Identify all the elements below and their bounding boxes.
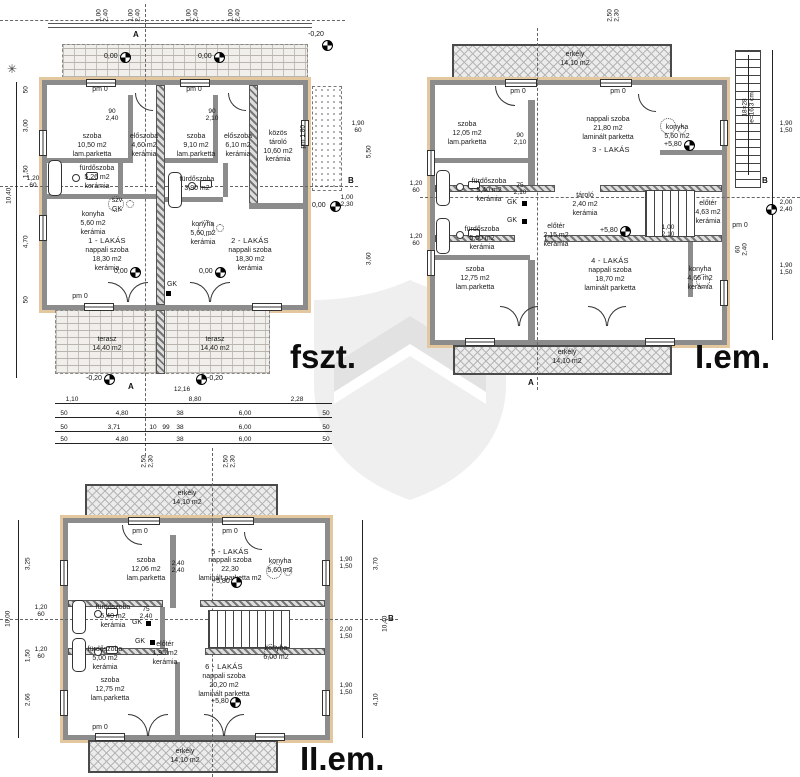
dim: 4,70 xyxy=(22,235,29,248)
room-label-furdo3: fürdőszoba 5,40 m2 kerámia xyxy=(472,178,507,204)
toilet-icon xyxy=(456,183,464,191)
axis-line-fszt xyxy=(145,4,146,456)
window xyxy=(427,150,435,176)
room-label-szoba6: szoba 12,75 m2 lam.parketta xyxy=(91,677,130,703)
level-marker-icon xyxy=(620,226,631,237)
label-szv-gk: szv GK xyxy=(112,197,123,215)
dim: 38 xyxy=(176,424,183,431)
external-ramp xyxy=(312,86,342,191)
dim-iem-top: 2,50 2,30 xyxy=(607,9,622,22)
dim: 1,20 60 xyxy=(410,233,423,248)
double-door xyxy=(500,306,538,326)
dim-door-a: 90 2,40 xyxy=(106,108,119,123)
level-marker-icon xyxy=(214,52,225,63)
gk-point-icon xyxy=(522,201,527,206)
dim-door: 1,00 2,10 xyxy=(662,224,675,239)
dim: 6,00 xyxy=(239,410,252,417)
section-mark-a-bottom: A xyxy=(128,382,134,391)
level-minus-top: -0,20 xyxy=(308,31,324,38)
level-marker-icon xyxy=(196,374,207,385)
level-zero-apt1: 0,00 xyxy=(114,268,128,275)
level-marker-icon xyxy=(684,140,695,151)
dim-door: 75 2,10 xyxy=(514,182,527,197)
dim: 1,20 60 xyxy=(410,180,423,195)
room-label-szoba5: szoba 12,06 m2 lam.parketta xyxy=(127,557,166,583)
gk-point-icon xyxy=(166,291,171,296)
window xyxy=(39,130,47,156)
dim: 50 xyxy=(60,424,67,431)
double-door xyxy=(108,282,148,302)
room-label-eloter-mid: előtér 2,15 m2 kerámia xyxy=(543,223,568,249)
room-label-furdo5: fürdőszoba 5,40 m2 kerámia xyxy=(96,604,131,630)
dim: 1,20 60 xyxy=(27,175,40,190)
balcony-label-top: erkély 14,10 m2 xyxy=(560,51,589,69)
double-door xyxy=(588,306,626,326)
section-mark-b: B xyxy=(348,176,354,185)
window xyxy=(252,303,282,311)
section-mark-a-top: A xyxy=(133,30,139,39)
dim: 3,00 xyxy=(22,119,29,132)
dim: 38 xyxy=(176,410,183,417)
level-marker-icon xyxy=(130,267,141,278)
window xyxy=(465,338,495,346)
label-pm0: pm 0 xyxy=(92,724,108,733)
dim-line xyxy=(55,431,332,432)
dim: 50 xyxy=(22,86,29,93)
terrace-label-left: terasz 14,40 m2 xyxy=(92,336,121,354)
dim-line xyxy=(362,520,363,738)
corridor-wall xyxy=(200,600,325,607)
dim-fszt-top-2: 1,00 2,40 xyxy=(128,9,143,22)
room-label-nappali6: nappali szoba 20,20 m2 laminált parketta xyxy=(198,673,249,699)
label-pm0: pm 0 xyxy=(222,528,238,537)
room-label-szoba1: szoba 10,50 m2 lam.parketta xyxy=(73,133,112,159)
level-iem: +5,80 xyxy=(600,227,618,234)
bathtub-icon xyxy=(436,170,450,206)
stair-note: 18×28 e=16,3 cm xyxy=(742,92,757,123)
dim: 2,66 xyxy=(24,693,31,706)
room-label-furdo6: fürdőszoba 5,00 m2 kerámia xyxy=(88,646,123,672)
level-marker-icon xyxy=(230,697,241,708)
dim-total: 12,16 xyxy=(174,386,190,393)
dim: 4,80 xyxy=(116,410,129,417)
dim: 1,90 1,50 xyxy=(340,556,353,571)
terrace-label-right: terasz 14,40 m2 xyxy=(200,336,229,354)
dim: 99 xyxy=(162,424,169,431)
label-pm0: pm 0 xyxy=(610,88,626,97)
dim: 50 xyxy=(22,296,29,303)
dim: 4,10 xyxy=(372,693,379,706)
window xyxy=(645,338,675,346)
window xyxy=(322,690,330,716)
room-label-eloter-right: előtér 4,63 m2 kerámia xyxy=(695,200,720,226)
dim-fszt-top-3: 1,00 2,40 xyxy=(186,9,201,22)
site-boundary-dashed xyxy=(0,20,345,21)
window xyxy=(720,280,728,306)
dim: 1,10 xyxy=(66,396,79,403)
window xyxy=(600,79,632,87)
level-apt5: +5,80 xyxy=(212,578,230,585)
room-label-konyha3: konyha 5,60 m2 xyxy=(664,124,689,142)
dim-fszt-top-1: 1,00 2,40 xyxy=(96,9,111,22)
label-pm180: pm 1,80 xyxy=(299,125,306,149)
level-apt6: +5,80 xyxy=(211,698,229,705)
apt6-title: 6 - LAKÁS xyxy=(205,662,243,671)
apt3-title: 3 - LAKÁS xyxy=(592,145,630,154)
dim: 38 xyxy=(176,436,183,443)
level-marker-icon xyxy=(322,40,333,51)
floor-title-iiem: II.em. xyxy=(300,740,384,777)
room-label-konyha5: konyha 5,60 m2 xyxy=(267,558,292,576)
level-marker-icon xyxy=(120,52,131,63)
dim-iiem-top-1: 2,50 2,30 xyxy=(141,455,156,468)
room-label-furdo2: fürdőszoba 3,90 m2 xyxy=(180,176,215,194)
balcony-label-bottom: erkély 14,10 m2 xyxy=(552,349,581,367)
dim-iiem-top-2: 2,50 2,30 xyxy=(223,455,238,468)
dim: 50 xyxy=(60,436,67,443)
dim: 1,20 60 xyxy=(35,646,48,661)
site-fence-line xyxy=(48,23,312,28)
double-door xyxy=(190,282,230,302)
bathtub-icon xyxy=(72,638,86,672)
dim: 50 xyxy=(60,410,67,417)
window xyxy=(427,250,435,276)
bathtub-icon xyxy=(72,600,86,634)
apt5-title: 5 - LAKÁS xyxy=(211,547,249,556)
window xyxy=(60,560,68,586)
partition-wall xyxy=(223,163,228,197)
dim: 10,40 xyxy=(5,188,12,204)
dim: 6,00 xyxy=(239,424,252,431)
level-minus-bl: -0,20 xyxy=(86,375,102,382)
north-arrow-icon: ✳ xyxy=(7,62,17,77)
room-label-furdo4: fürdőszoba 5,00 m2 kerámia xyxy=(465,226,500,252)
dim: 50 xyxy=(322,436,329,443)
dim: 50 xyxy=(322,410,329,417)
room-label-nappali2: nappali szoba 18,30 m2 kerámia xyxy=(228,247,271,273)
room-label-szoba3: szoba 12,05 m2 lam.parketta xyxy=(448,121,487,147)
room-label-konyha6: konyha 6,00 m2 xyxy=(263,645,288,663)
label-pm0: pm 0 xyxy=(732,222,748,231)
label-gk: GK xyxy=(135,638,145,647)
floor-title-iem: I.em. xyxy=(695,338,770,376)
partition-wall xyxy=(118,163,123,194)
dim: 3,71 xyxy=(108,424,121,431)
room-label-furdo1: fürdőszoba 5,26 m2 kerámia xyxy=(80,165,115,191)
room-label-storage: közös tároló 10,60 m2 kerámia xyxy=(263,130,292,165)
dim: 8,80 xyxy=(189,396,202,403)
room-label-konyha4: konyha 4,66 m2 kerámia xyxy=(687,266,712,292)
dim: 1,00 2,30 xyxy=(341,194,354,209)
balcony-label-top: erkély 14,10 m2 xyxy=(172,490,201,508)
dim: 10 xyxy=(149,424,156,431)
level-zero-paving-l: 0,00 xyxy=(104,53,118,60)
window xyxy=(255,733,285,741)
dim: 1,20 60 xyxy=(35,604,48,619)
dim-line xyxy=(18,520,19,738)
corridor-wall xyxy=(545,235,722,242)
level-minus-br: -0,20 xyxy=(207,375,223,382)
room-label-eloszoba1: előszoba 4,60 m2 kerámia xyxy=(130,133,158,159)
level-zero-entry: 0,00 xyxy=(312,202,326,209)
level-marker-icon xyxy=(330,201,341,212)
apt1-title: 1 - LAKÁS xyxy=(88,236,126,245)
dim: 3,25 xyxy=(24,557,31,570)
chair-icon xyxy=(126,200,134,208)
dim-door: 2,40 2,40 xyxy=(172,560,185,575)
section-mark-b: B xyxy=(762,176,768,185)
dim: 50 xyxy=(322,424,329,431)
room-label-eloter6: előtér 1,95 m2 kerámia xyxy=(152,641,177,667)
room-label-nappali3: nappali szoba 21,80 m2 laminált parketta xyxy=(582,116,633,142)
dim: 4,80 xyxy=(116,436,129,443)
room-label-szoba2: szoba 9,10 m2 lam.parketta xyxy=(177,133,216,159)
dim: 1,90 1,50 xyxy=(780,120,793,135)
label-gk: GK xyxy=(167,281,177,290)
window xyxy=(128,517,160,525)
dim: 1,90 1,50 xyxy=(340,682,353,697)
label-gk: GK xyxy=(507,199,517,208)
window xyxy=(720,120,728,146)
gk-point-icon xyxy=(522,219,527,224)
partition-wall xyxy=(435,255,530,260)
dim: 2,28 xyxy=(291,396,304,403)
window xyxy=(84,303,114,311)
room-label-konyha2: konyha 5,60 m2 kerámia xyxy=(190,221,215,247)
room-label-storage-mid: tároló 2,40 m2 kerámia xyxy=(572,192,597,218)
room-label-nappali5: nappali szoba 22,30 laminált parketta m2 xyxy=(198,557,261,583)
dim: 5,50 xyxy=(365,145,372,158)
window xyxy=(39,215,47,241)
partition-wall xyxy=(528,260,535,340)
dim-line xyxy=(772,50,773,340)
level-marker-icon xyxy=(766,204,777,215)
apt4-title: 4 - LAKÁS xyxy=(591,256,629,265)
paving-area xyxy=(62,44,308,78)
section-mark-a: A xyxy=(528,378,534,387)
dim: 1,50 xyxy=(24,649,31,662)
partition-wall xyxy=(435,158,530,163)
dim-door-b: 90 2,10 xyxy=(206,108,219,123)
dim-line xyxy=(55,417,332,418)
dim: 2,00 2,40 xyxy=(780,199,793,214)
window xyxy=(60,690,68,716)
dim-line xyxy=(55,443,332,444)
dim-door: 90 2,10 xyxy=(514,132,527,147)
floor-title-fszt: fszt. xyxy=(290,338,356,376)
level-zero-paving-r: 0,00 xyxy=(198,53,212,60)
dim: 3,70 xyxy=(372,557,379,570)
double-door xyxy=(128,714,168,736)
internal-stairs xyxy=(208,610,290,648)
label-pm0: pm 0 xyxy=(510,88,526,97)
label-pm0: pm 0 xyxy=(72,293,88,302)
room-label-konyha1: konyha 5,60 m2 kerámia xyxy=(80,211,105,237)
gk-point-icon xyxy=(146,621,151,626)
room-label-eloszoba2: előszoba 6,10 m2 kerámia xyxy=(224,133,252,159)
chair-icon xyxy=(216,224,224,232)
apt2-title: 2 - LAKÁS xyxy=(231,236,269,245)
window xyxy=(222,517,254,525)
label-pm0: pm 0 xyxy=(132,528,148,537)
level-marker-icon xyxy=(231,577,242,588)
section-mark-b: B xyxy=(388,614,394,623)
dim: 1,90 1,50 xyxy=(780,262,793,277)
dim: 60 2,40 xyxy=(735,243,750,256)
dim: 6,00 xyxy=(239,436,252,443)
label-pm0: pm 0 xyxy=(186,86,202,95)
double-door xyxy=(204,714,244,736)
level-zero-apt2: 0,00 xyxy=(199,268,213,275)
dim: 3,60 xyxy=(365,252,372,265)
bathtub-icon xyxy=(48,160,62,196)
ref-line-ii xyxy=(0,619,398,620)
balcony-label-bottom: erkély 14,10 m2 xyxy=(170,748,199,766)
dim-fszt-top-4: 1,00 2,40 xyxy=(228,9,243,22)
dim-door: 75 2,40 xyxy=(140,606,153,621)
dim: 1,90 60 xyxy=(352,120,365,135)
window xyxy=(322,560,330,586)
floor-plan-sheet: ✳ 1,00 2,40 1,00 2,40 1,00 2,40 1,00 2,4… xyxy=(0,0,800,777)
dim: 2,00 1,50 xyxy=(340,626,353,641)
dim-line xyxy=(16,82,17,378)
dim: 10,00 xyxy=(4,611,11,627)
party-wall xyxy=(156,85,165,305)
room-label-szoba4: szoba 12,75 m2 lam.parketta xyxy=(456,266,495,292)
partition-wall xyxy=(47,194,156,199)
bathtub-icon xyxy=(436,218,450,254)
label-pm0: pm 0 xyxy=(92,86,108,95)
level-marker-icon xyxy=(104,374,115,385)
label-gk: GK xyxy=(507,217,517,226)
partition-wall xyxy=(528,100,535,185)
axis-line-iem xyxy=(537,28,538,390)
level-marker-icon xyxy=(215,267,226,278)
terrace-pier xyxy=(156,310,165,374)
room-label-nappali4: nappali szoba 18,70 m2 laminált parketta xyxy=(584,267,635,293)
window xyxy=(95,733,125,741)
partition-wall xyxy=(175,662,180,735)
level-konyha3: +5,80 xyxy=(664,141,682,148)
partition-wall xyxy=(249,203,303,209)
toilet-icon xyxy=(456,231,464,239)
